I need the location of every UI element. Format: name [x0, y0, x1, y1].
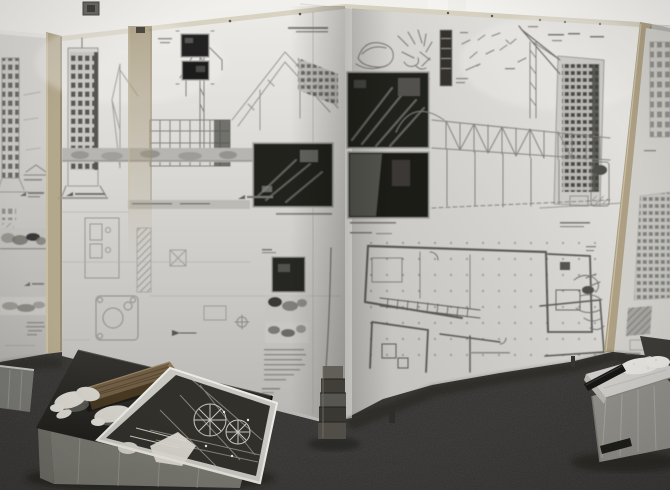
- exhibition-photo: Architecture exhibition room: zigzag whi…: [0, 0, 670, 490]
- scene-canvas: Architecture exhibition room: zigzag whi…: [0, 0, 670, 490]
- vignette-overlay: [0, 0, 670, 490]
